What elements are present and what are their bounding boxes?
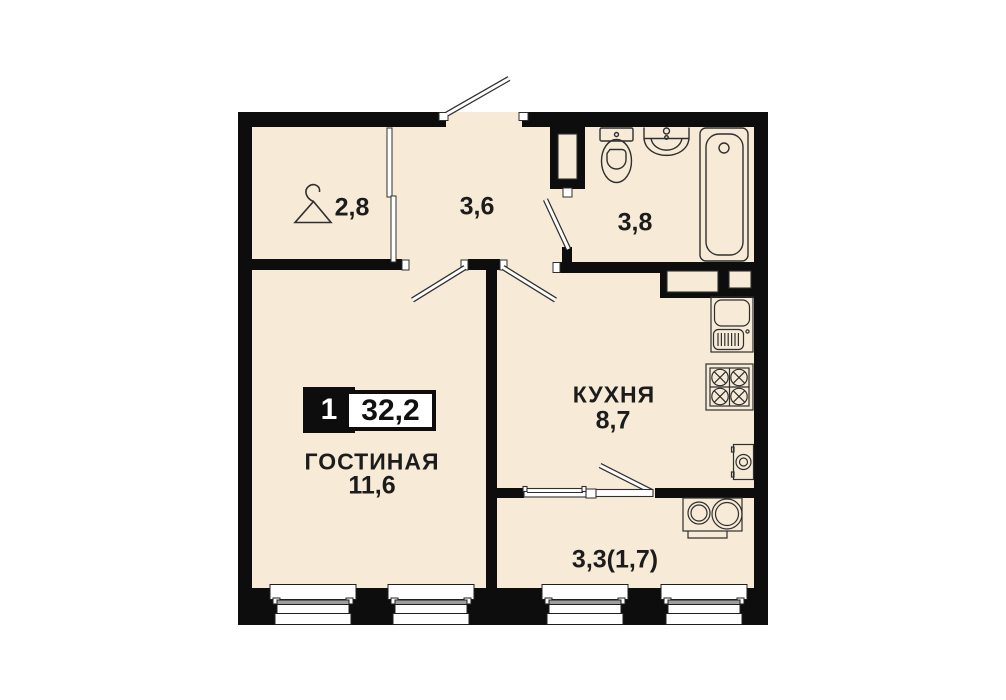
kitchen-shaft-void-left xyxy=(667,271,718,292)
kitchen-shaft-void-right xyxy=(729,271,751,288)
balcony-sink-icon xyxy=(683,498,742,538)
hallway-area-label: 3,6 xyxy=(460,195,495,220)
living-room-area-label: 11,6 xyxy=(348,474,395,499)
window-icon-living-1 xyxy=(270,585,356,625)
living-room-door-icon xyxy=(413,268,466,301)
total-area-value: 32,2 xyxy=(361,394,419,428)
wardrobe-area-label: 2,8 xyxy=(335,196,370,221)
bathtub-icon xyxy=(700,128,748,261)
balcony-door-icon xyxy=(600,466,653,493)
window-icon-living-2 xyxy=(388,585,474,625)
kitchen-name-label: КУХНЯ xyxy=(573,384,655,407)
balcony-area-label: 3,3(1,7) xyxy=(572,548,658,573)
entrance-door-icon xyxy=(447,79,509,115)
room-count-value: 1 xyxy=(321,393,338,427)
floor-plan: 2,8 3,6 3,8 КУХНЯ 8,7 ГОСТИНАЯ 11,6 3,3(… xyxy=(0,0,1006,700)
window-icon-balcony-2 xyxy=(661,585,747,625)
kitchen-sink-icon xyxy=(711,297,753,352)
washing-machine-icon xyxy=(732,445,754,480)
toilet-icon xyxy=(600,128,633,183)
window-icon-balcony-1 xyxy=(542,585,628,625)
kitchen-area-label: 8,7 xyxy=(596,409,631,434)
hanger-icon xyxy=(295,185,331,223)
fixtures-overlay xyxy=(0,0,1006,700)
wardrobe-partition xyxy=(387,128,396,262)
stove-icon xyxy=(706,364,753,410)
washbasin-icon xyxy=(644,128,689,156)
total-area-badge: 32,2 xyxy=(345,390,436,431)
kitchen-door-icon xyxy=(503,268,556,301)
bathroom-duct-void xyxy=(558,134,577,179)
bathroom-area-label: 3,8 xyxy=(618,211,653,236)
bathroom-door-icon xyxy=(546,200,569,250)
living-room-name-label: ГОСТИНАЯ xyxy=(305,451,440,474)
